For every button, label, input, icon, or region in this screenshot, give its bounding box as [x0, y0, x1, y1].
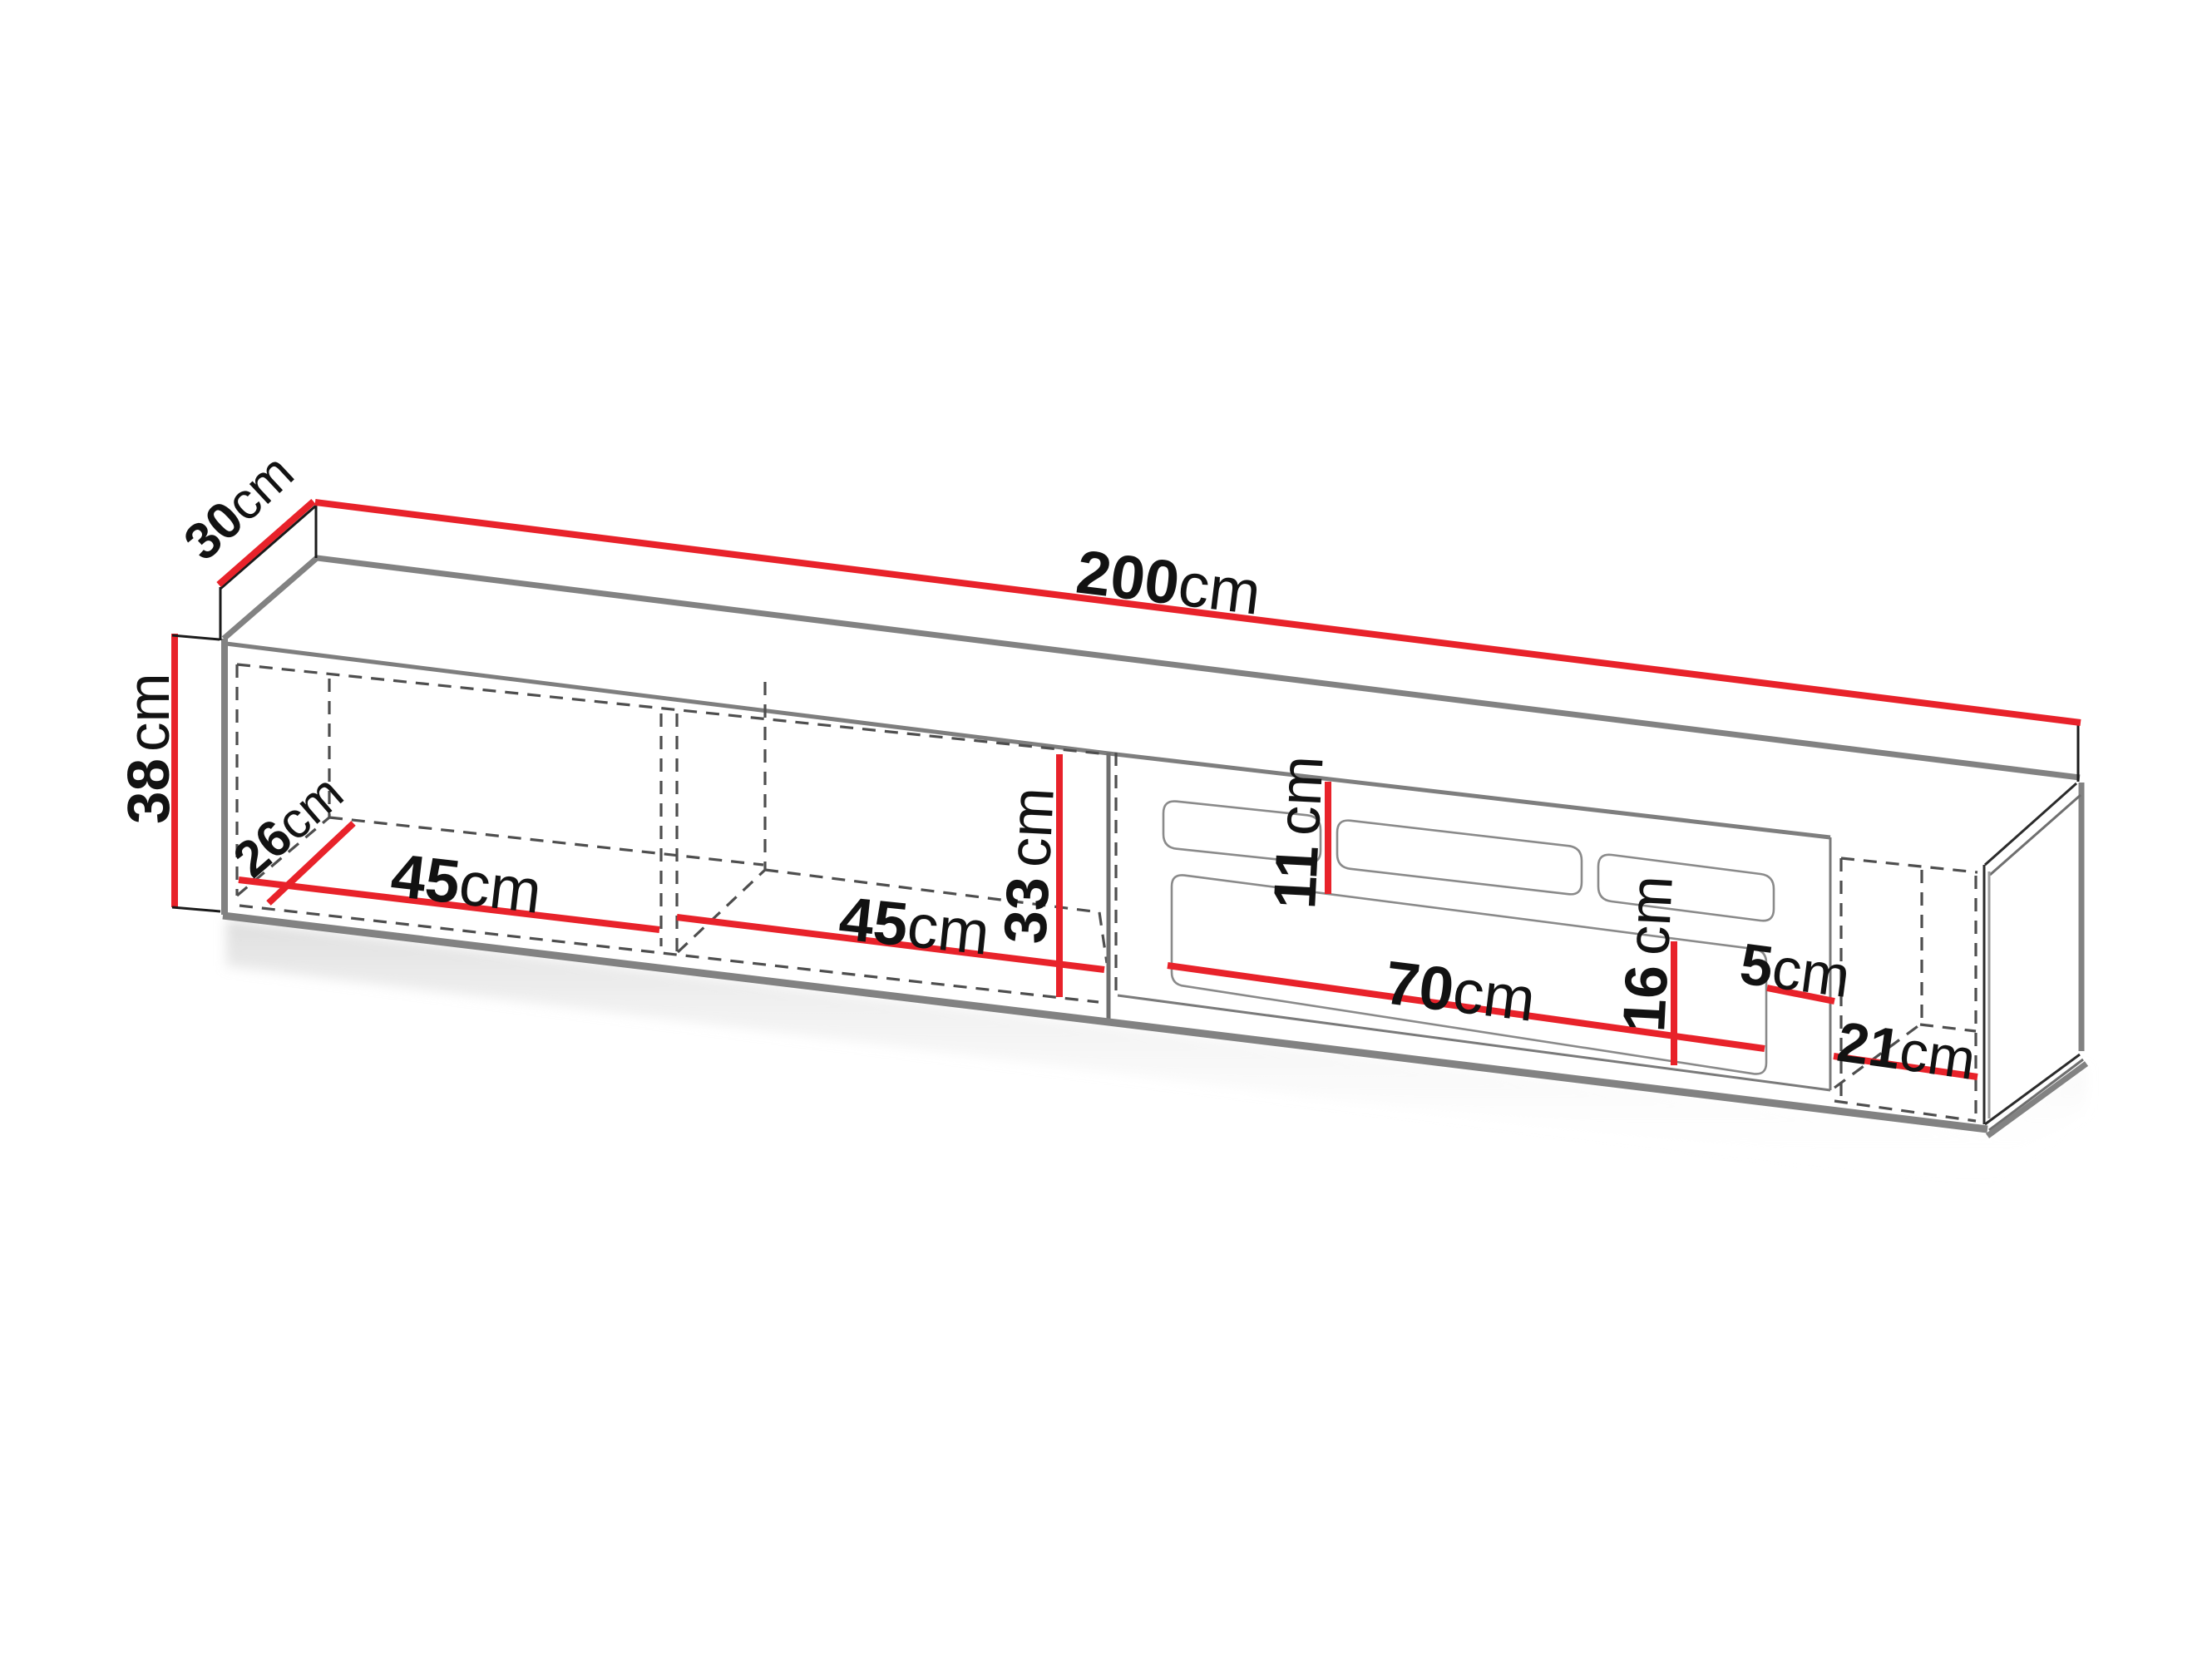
svg-text:38cm: 38cm — [116, 673, 182, 824]
svg-text:33cm: 33cm — [992, 786, 1067, 946]
svg-text:11cm: 11cm — [1262, 754, 1336, 911]
svg-text:16cm: 16cm — [1611, 874, 1686, 1034]
